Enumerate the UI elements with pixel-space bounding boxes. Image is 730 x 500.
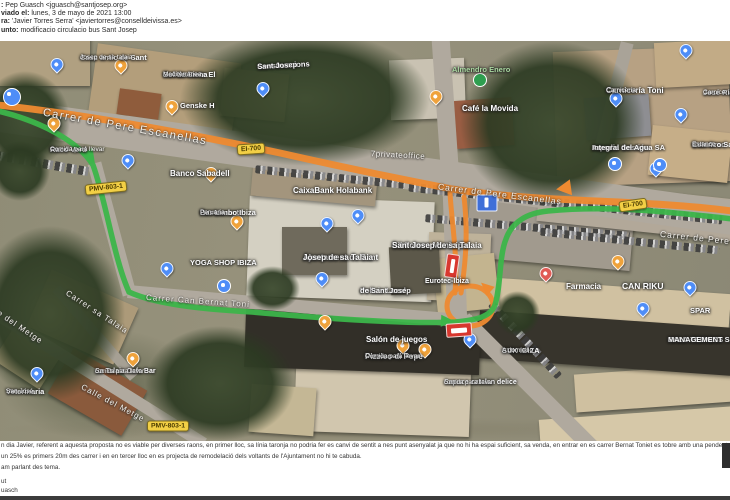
- email-message-view: : Pep Guasch <jguasch@santjosep.org> via…: [0, 0, 730, 500]
- sign-glyph: [485, 198, 489, 208]
- sign-glyph: [449, 259, 455, 273]
- window-bottom-edge: [0, 496, 730, 500]
- route-shield: EI-700: [237, 143, 266, 156]
- email-sent-line: viado el: lunes, 3 de mayo de 2021 13:00: [1, 10, 182, 18]
- email-from-line: : Pep Guasch <jguasch@santjosep.org>: [1, 2, 182, 10]
- sign-glyph: [451, 327, 467, 333]
- route-shield: PMV-803-1: [147, 421, 189, 432]
- reply-text: n dia Javier, referent a aquesta propost…: [1, 441, 729, 473]
- to-label: ra:: [1, 18, 10, 25]
- place-dot-icon: [653, 158, 667, 172]
- nature-icon: [473, 73, 487, 87]
- embedded-map-image[interactable]: EI-700 EI-700 PMV-803-1 PMV-803-1: [0, 41, 730, 441]
- sent-label: viado el:: [1, 10, 29, 17]
- reply-line: n dia Javier, referent a aquesta propost…: [1, 441, 729, 452]
- signature-line: ut: [1, 478, 6, 485]
- email-subject-line: unto: modificacio circulacio bus Sant Jo…: [1, 27, 182, 35]
- scrollbar-mark[interactable]: [722, 443, 730, 468]
- email-header: : Pep Guasch <jguasch@santjosep.org> via…: [1, 2, 182, 35]
- reply-line: am parlant des tema.: [1, 463, 729, 474]
- orange-arrowhead: [555, 179, 572, 197]
- subject-label: unto:: [1, 27, 19, 34]
- place-dot-icon: [217, 279, 231, 293]
- no-entry-sign-icon: [446, 322, 473, 338]
- place-dot-icon: [3, 88, 21, 106]
- email-to-line: ra: 'Javier Torres Serra' <javiertorres@…: [1, 18, 182, 26]
- place-dot-icon: [608, 157, 622, 171]
- signature-line: uasch: [1, 487, 18, 494]
- reply-line: un 25% es primers 20m des carrer i en en…: [1, 452, 729, 463]
